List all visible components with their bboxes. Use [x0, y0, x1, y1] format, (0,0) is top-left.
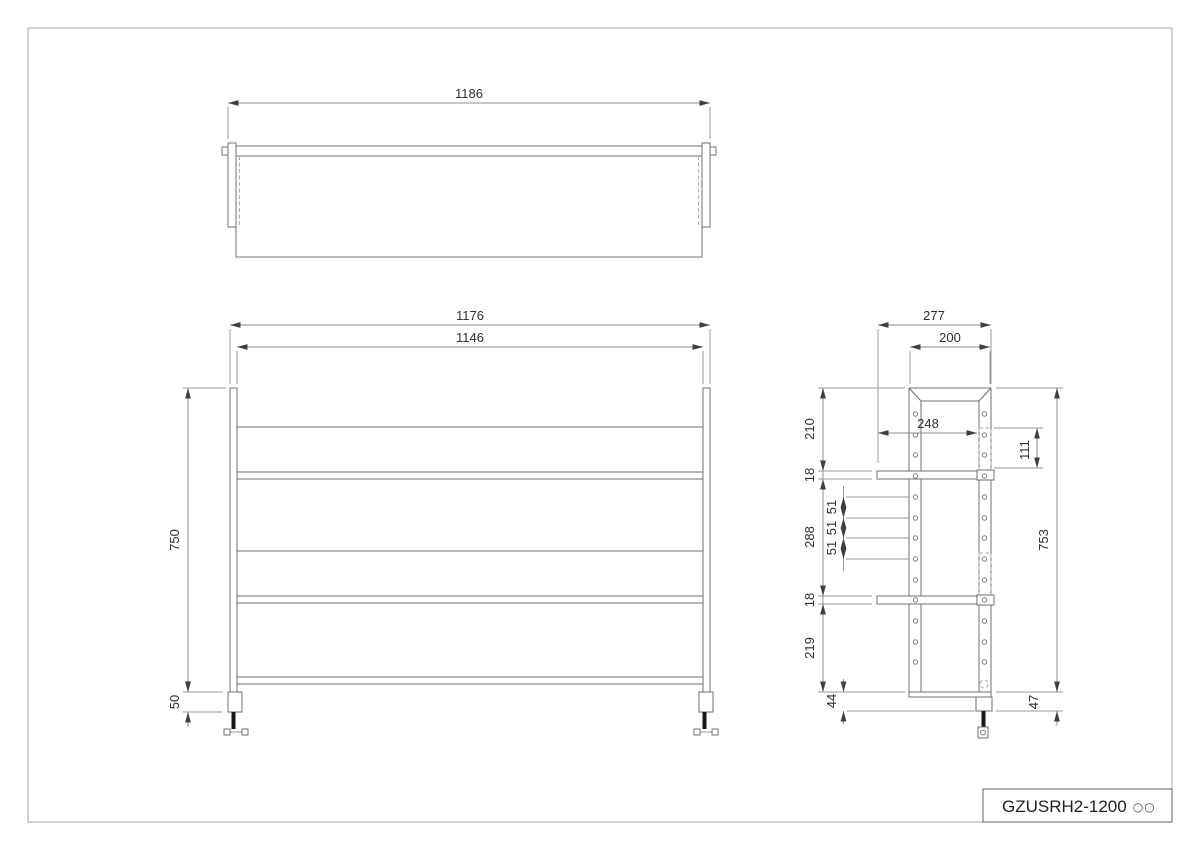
front-view: 1176 1146 750 50: [167, 308, 718, 735]
front-left-foot: [224, 692, 248, 735]
part-number: GZUSRH2-1200 ○○: [1002, 797, 1156, 816]
dim-top-overall-width: 1186: [228, 86, 710, 139]
option-marks: ○○: [1133, 800, 1156, 814]
top-view: 1186: [222, 86, 716, 257]
dim-label-750: 750: [167, 529, 182, 551]
side-shelf-lower: [877, 595, 994, 605]
dim-label-1176: 1176: [456, 308, 484, 323]
front-right-post: [703, 388, 710, 692]
dim-side-overall-depth: 277: [878, 308, 991, 463]
drawing-sheet: 1186: [0, 0, 1200, 850]
dim-label-200: 200: [939, 330, 961, 345]
dim-label-51-3: 51: [824, 541, 839, 555]
dim-side-frame-height: 753: [996, 388, 1063, 692]
top-view-left-hook: [222, 147, 228, 155]
dim-front-height: 750: [167, 388, 226, 692]
top-view-left-post: [228, 143, 236, 227]
dim-label-51-1: 51: [824, 500, 839, 514]
title-block: GZUSRH2-1200 ○○: [983, 789, 1172, 822]
dim-label-219: 219: [802, 637, 817, 659]
dim-label-210: 210: [802, 418, 817, 440]
sheet-border: [28, 28, 1172, 822]
dim-label-18-lower: 18: [802, 593, 817, 607]
dim-label-50: 50: [167, 695, 182, 709]
dim-label-1146: 1146: [456, 330, 484, 345]
dim-label-18-upper: 18: [802, 468, 817, 482]
dim-front-foot-height: 50: [167, 677, 222, 727]
side-view: 277 200 248 111 753 47: [802, 308, 1063, 738]
dim-side-shelf-depth: 248: [878, 416, 977, 433]
front-left-post: [230, 388, 237, 692]
dim-front-inner-width: 1146: [237, 330, 703, 384]
dim-side-foot-height: 47: [996, 695, 1063, 726]
dim-label-51-2: 51: [824, 521, 839, 535]
dim-side-frame-depth: 200: [910, 330, 990, 384]
dim-label-753: 753: [1036, 529, 1051, 551]
dim-side-foot-inset: 44: [824, 679, 975, 724]
front-right-foot: [694, 692, 718, 735]
side-foot: [976, 697, 992, 738]
top-view-right-post: [702, 143, 710, 227]
top-view-right-hook: [710, 147, 716, 155]
dim-label-111: 111: [1017, 440, 1032, 460]
dim-label-47: 47: [1026, 695, 1041, 709]
dim-label-248: 248: [917, 416, 939, 431]
dim-side-bracket-length: 111: [994, 428, 1043, 468]
post-holes: [913, 412, 986, 664]
dim-front-outer-width: 1176: [230, 308, 710, 384]
dim-label-288: 288: [802, 526, 817, 548]
dim-side-left-chain: 210 18 288 18 219: [802, 388, 905, 692]
dim-label-1186: 1186: [455, 86, 483, 101]
side-bottom-rail: [909, 692, 991, 697]
dim-side-hole-pitch-chain: 51 51 51: [824, 486, 909, 571]
front-shelf-rails: [237, 427, 703, 684]
dim-label-277: 277: [923, 308, 945, 323]
hidden-foot-socket: [980, 680, 988, 688]
dim-label-44: 44: [824, 694, 839, 708]
side-shelf-upper: [877, 470, 994, 480]
